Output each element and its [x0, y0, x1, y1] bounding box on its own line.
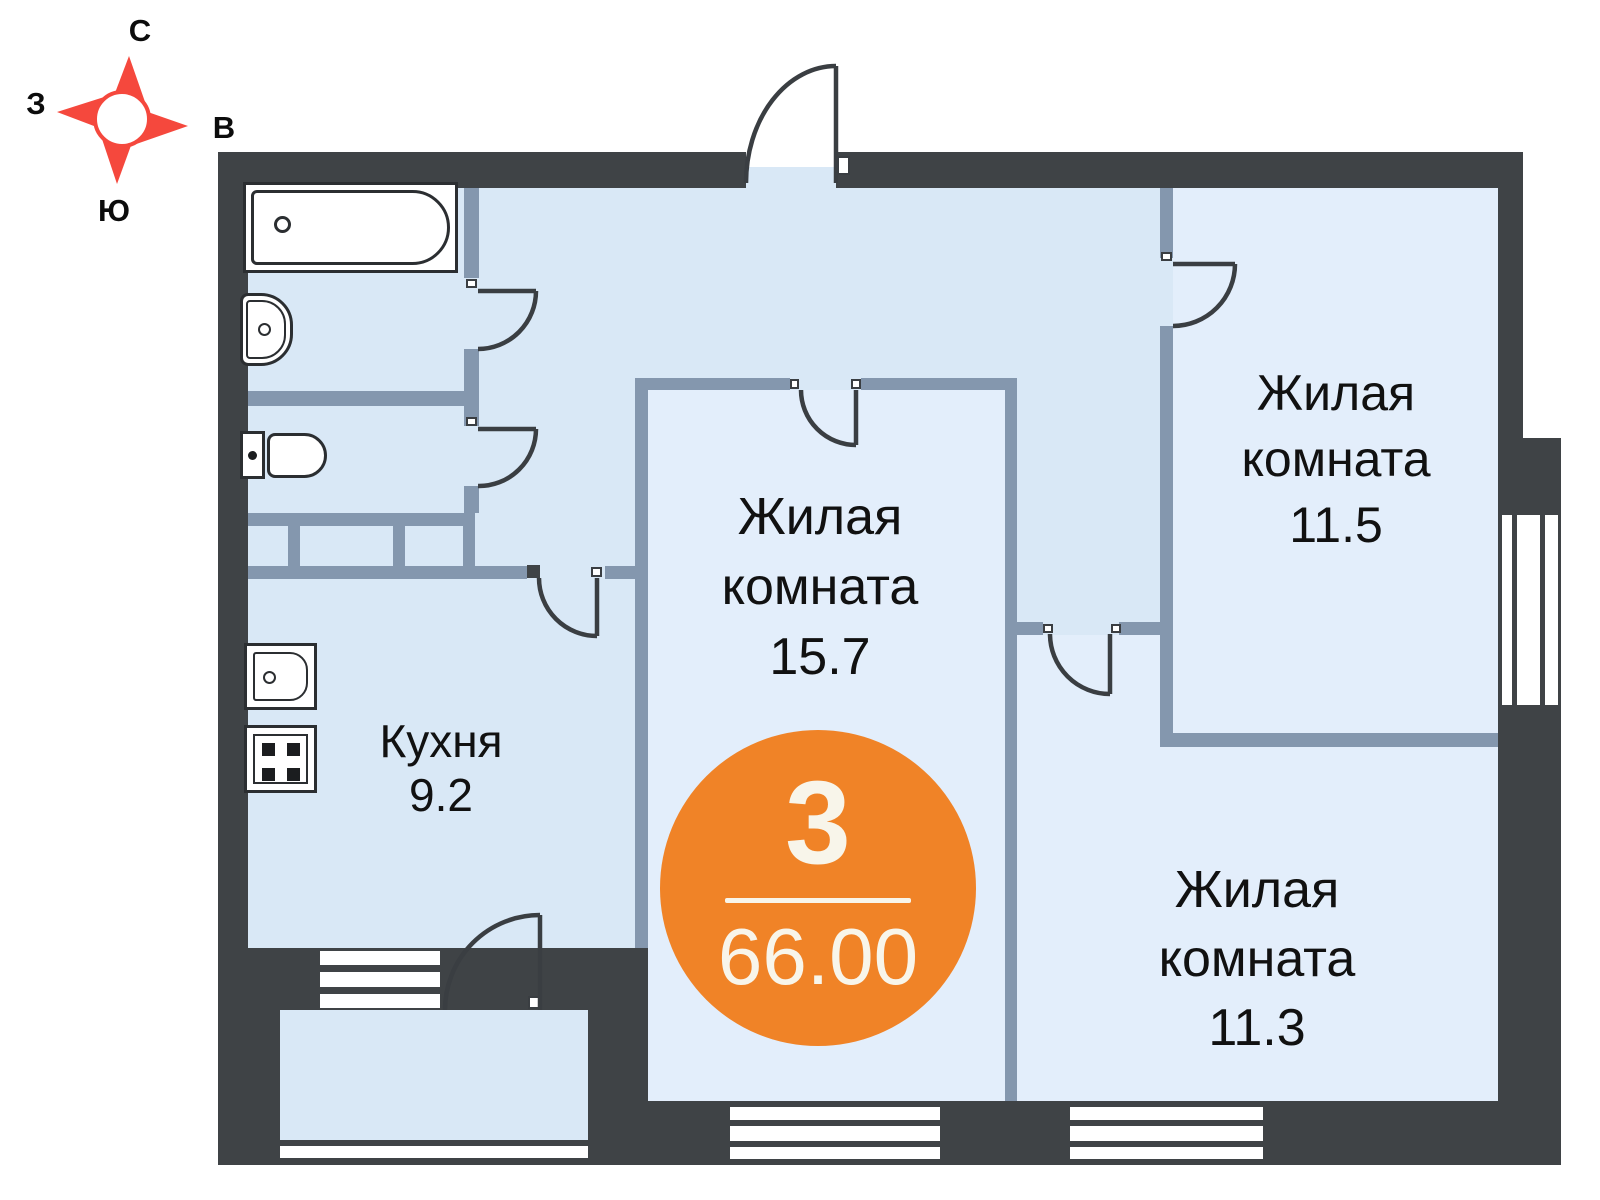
- entrance-door-arc: [746, 66, 836, 183]
- living-room-1-label: Жилая комната 15.7: [722, 482, 919, 692]
- living-room-2-area: 11.5: [1241, 492, 1430, 558]
- kitchen-door-arc: [539, 578, 597, 636]
- living-room-3-name-line1: Жилая: [1159, 856, 1356, 925]
- living-room-1-area: 15.7: [722, 622, 919, 692]
- living-room-3-name-line2: комната: [1159, 925, 1356, 994]
- living-room-2-label: Жилая комната 11.5: [1241, 360, 1430, 558]
- compass-label-east: В: [213, 110, 235, 146]
- wc-door-arc: [478, 429, 536, 486]
- compass-label-north: С: [129, 13, 151, 49]
- living-room-1-name-line2: комната: [722, 552, 919, 622]
- kitchen-name: Кухня: [379, 714, 502, 768]
- badge-divider: [725, 898, 911, 903]
- compass-hub: [95, 92, 149, 146]
- balcony-door-arc: [445, 915, 540, 1010]
- living-room-2-name-line2: комната: [1241, 426, 1430, 492]
- living-room-3-label: Жилая комната 11.3: [1159, 856, 1356, 1063]
- living-room-2-name-line1: Жилая: [1241, 360, 1430, 426]
- floor-plan-canvas: Жилая комната 15.7 Жилая комната 11.5 Жи…: [0, 0, 1600, 1200]
- living-room-3-area: 11.3: [1159, 994, 1356, 1063]
- kitchen-area: 9.2: [379, 768, 502, 822]
- kitchen-label: Кухня 9.2: [379, 714, 502, 822]
- badge-room-count: 3: [785, 764, 851, 882]
- bathroom-door-arc: [478, 291, 536, 349]
- compass-label-south: Ю: [98, 193, 130, 229]
- living1-door-arc: [801, 390, 856, 445]
- apartment-badge: 3 66.00: [660, 730, 976, 1046]
- compass-label-west: З: [26, 86, 45, 122]
- badge-total-area: 66.00: [718, 917, 918, 997]
- living-room-1-name-line1: Жилая: [722, 482, 919, 552]
- living2-door-arc: [1173, 264, 1235, 326]
- vestibule-door-arc: [1050, 634, 1110, 694]
